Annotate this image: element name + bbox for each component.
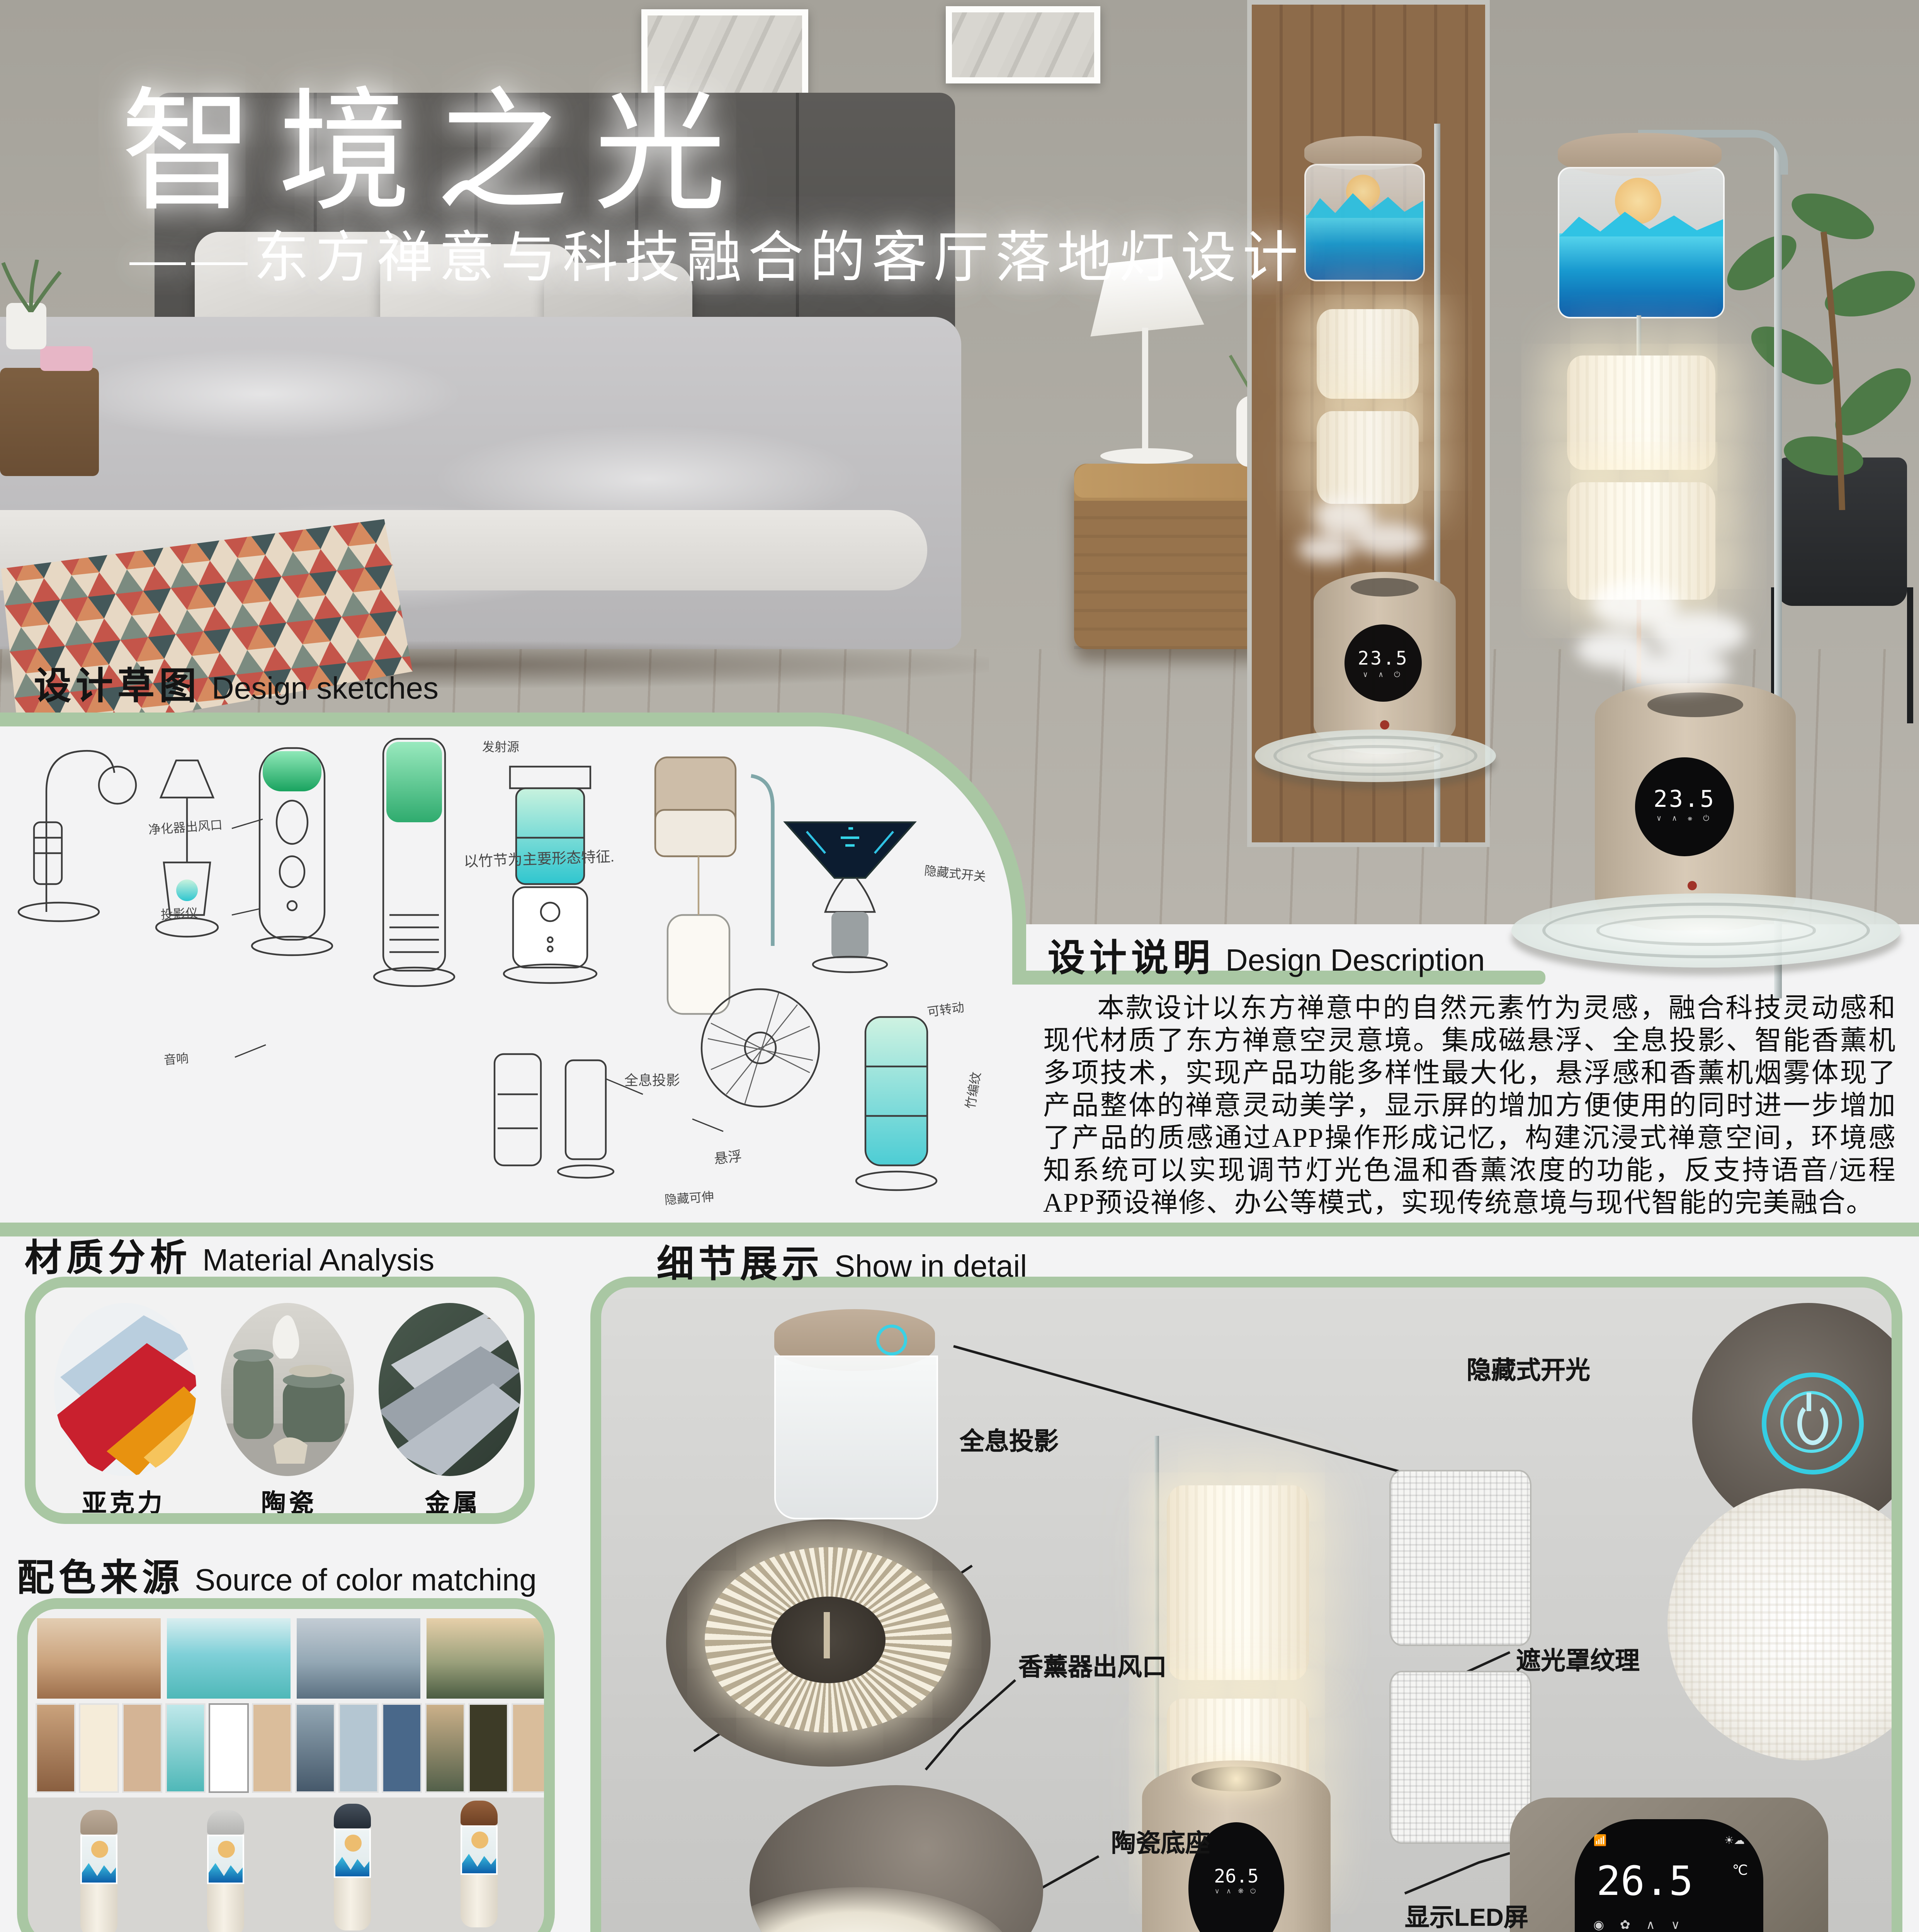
- material-label-ceramic: 陶瓷: [261, 1482, 317, 1519]
- palette-swatch: [210, 1705, 247, 1791]
- material-label-metal: 金属: [425, 1482, 481, 1519]
- material-image-ceramic: [221, 1303, 354, 1476]
- lamp-variant-silver: [207, 1810, 244, 1932]
- detail-led-closeup: 📶 ☀☁ 26.5 ℃ ◉ ✿ ∧ ∨ ⏻: [1510, 1798, 1828, 1932]
- small-plant-leaves: [0, 260, 62, 312]
- glass-base-disc: [1511, 893, 1901, 968]
- palette-crop-desert: [37, 1705, 74, 1791]
- table-lamp-base: [1100, 448, 1193, 464]
- left-nightstand: [0, 368, 99, 476]
- lamp-variant-taupe: [80, 1810, 117, 1932]
- lamp-variant-copper: [461, 1801, 498, 1927]
- detail-label-outlet: 香薰器出风口: [1018, 1646, 1167, 1683]
- palette-crop-forest: [427, 1705, 464, 1791]
- color-image-desert: [37, 1618, 161, 1699]
- heading-color-source: 配色来源Source of color matching: [17, 1547, 537, 1601]
- palette-swatch: [253, 1705, 291, 1791]
- lamp-variant-navy: [334, 1804, 371, 1930]
- material-image-metal: [379, 1303, 521, 1476]
- detail-wireframe-shade-b: [1389, 1671, 1531, 1844]
- led-screen-value: 26.5: [1596, 1859, 1693, 1906]
- color-image-rocks: [297, 1618, 420, 1699]
- sketch-annotation: 隐藏可伸: [664, 1189, 715, 1209]
- hero-product-lamp: 23.5 ∨ ∧ ❋ ⏻: [1530, 121, 1901, 1009]
- sketch-annotation: 音响: [163, 1050, 189, 1069]
- sketch-annotation: 发射源: [482, 739, 519, 756]
- material-label-acrylic: 亚克力: [82, 1482, 165, 1519]
- detail-shade-a: [1167, 1485, 1309, 1680]
- palette-crop-sea: [167, 1705, 204, 1791]
- material-image-acrylic: [54, 1303, 196, 1476]
- table-lamp-stem: [1142, 328, 1148, 454]
- base-display: 23.5 ∨ ∧ ❋ ⏻: [1635, 757, 1734, 856]
- palette-swatch: [80, 1705, 117, 1791]
- heading-description: 设计说明Design Description: [1048, 927, 1485, 981]
- palette-swatch: [124, 1705, 161, 1791]
- detail-label-shade: 遮光罩纹理: [1516, 1640, 1640, 1677]
- color-source-box: [17, 1598, 555, 1932]
- sketch-annotation: 全息投影: [624, 1070, 680, 1090]
- color-image-sea: [167, 1618, 291, 1699]
- description-body: 本款设计以东方禅意中的自然元素竹为灵感，融合科技灵动感和现代材质了东方禅意空灵意…: [1043, 992, 1896, 1224]
- palette-crop-rocks: [297, 1705, 334, 1791]
- detail-label-switch: 隐藏式开光: [1467, 1349, 1590, 1386]
- holo-cylinder: [1558, 167, 1725, 318]
- sketch-annotation: 悬浮: [713, 1145, 743, 1168]
- pink-box: [40, 346, 93, 371]
- wall-picture-right: [946, 6, 1100, 83]
- detail-base-display-value: 26.5: [1188, 1866, 1284, 1887]
- base-display-value: 23.5: [1635, 785, 1734, 813]
- detail-label-led: 显示LED屏: [1405, 1896, 1528, 1932]
- lamp-shade-upper: [1567, 355, 1715, 470]
- palette-swatch: [383, 1705, 420, 1791]
- detail-label-holo: 全息投影: [960, 1420, 1059, 1458]
- heading-material: 材质分析Material Analysis: [25, 1227, 434, 1281]
- heading-sketches: 设计草图Design sketches: [34, 655, 439, 709]
- palette-swatch: [340, 1705, 377, 1791]
- design-sketches-drawing: [0, 730, 1020, 1221]
- poster-subtitle: ——东方禅意与科技融合的客厅落地灯设计: [130, 213, 1304, 294]
- sketch-annotation: 投影仪: [160, 905, 198, 924]
- material-box: 亚克力 陶瓷 金属: [25, 1277, 535, 1524]
- detail-label-base: 陶瓷底座: [1111, 1822, 1210, 1859]
- heading-detail: 细节展示Show in detail: [657, 1233, 1027, 1287]
- poster-title: 智境之光: [121, 43, 751, 236]
- detail-diffuser-topview: [666, 1519, 991, 1767]
- detail-wireframe-shade-a: [1389, 1470, 1531, 1646]
- palette-swatch: [470, 1705, 507, 1791]
- reflected-display-value: 23.5: [1344, 648, 1422, 669]
- palette-swatch: [513, 1705, 550, 1791]
- led-screen-unit: ℃: [1732, 1862, 1748, 1879]
- poster-root: 23.5∨ ∧ ⏻: [0, 0, 1919, 1932]
- color-image-forest: [427, 1618, 550, 1699]
- detail-box: 全息投影 隐藏式开光 香薰器出风口 遮光罩纹理: [590, 1277, 1902, 1932]
